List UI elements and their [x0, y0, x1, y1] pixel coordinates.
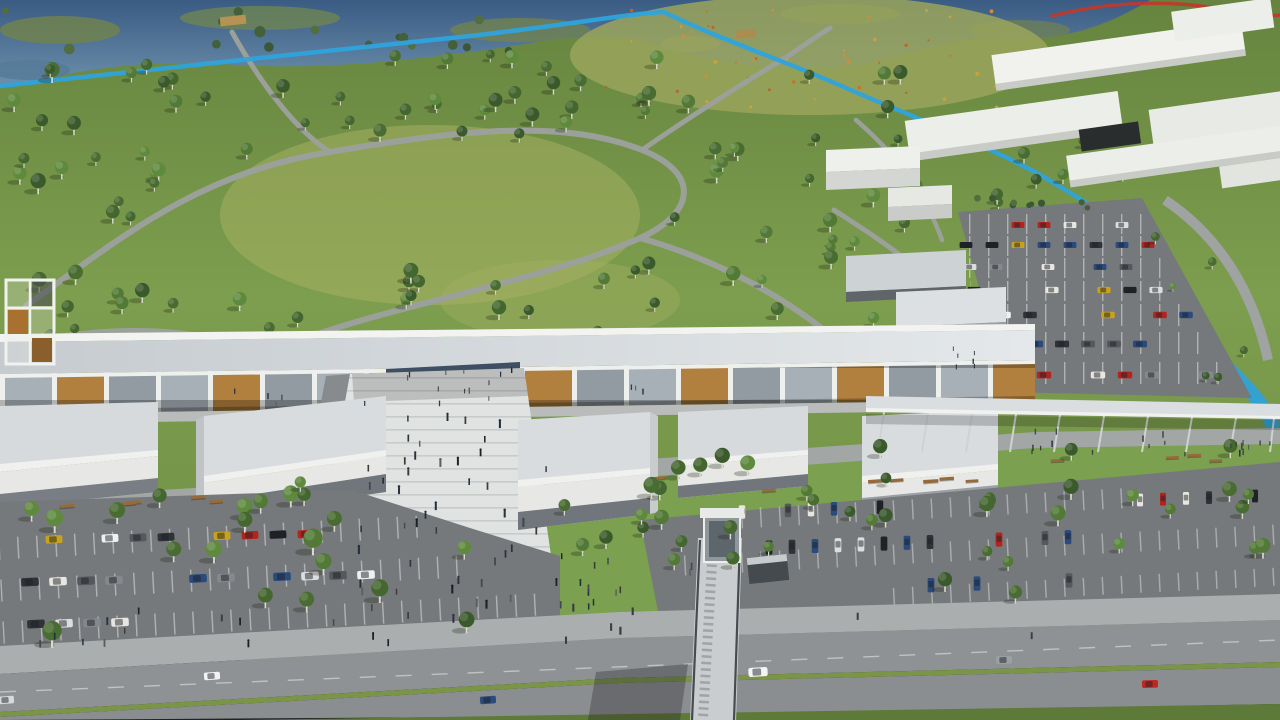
canopy-walk-person	[1242, 449, 1244, 456]
promenade-person	[39, 640, 41, 647]
meadow-flower	[605, 86, 607, 88]
wetland-bush	[212, 40, 221, 49]
bollard	[1031, 450, 1032, 455]
parked-car	[27, 619, 45, 628]
parked-car	[1118, 372, 1132, 379]
bollard	[1184, 452, 1185, 456]
plaza-person	[415, 518, 418, 527]
terrace-person	[974, 351, 975, 355]
meadow-flower	[707, 25, 709, 27]
plaza-person	[371, 604, 373, 611]
terrace-person	[974, 364, 975, 369]
park-building-front	[888, 204, 952, 221]
parked-car	[1066, 573, 1073, 587]
meadow-flower	[705, 74, 708, 77]
plaza-person	[409, 560, 411, 567]
bollard	[1040, 446, 1041, 451]
bridge-person	[587, 584, 589, 592]
plaza-person	[396, 589, 398, 595]
bridge-person	[593, 599, 595, 605]
canopy-walk-person	[1035, 429, 1037, 435]
colonnade-person	[488, 380, 489, 385]
plaza-person	[499, 419, 502, 428]
plaza-person	[382, 478, 384, 484]
light-pole	[572, 604, 574, 612]
bridge-person	[579, 579, 581, 586]
meadow-flower	[868, 15, 871, 18]
bridge-person	[615, 589, 617, 595]
bridge-person	[691, 563, 693, 570]
colonnade-person	[281, 395, 283, 401]
bridge-person	[588, 603, 590, 609]
parked-car	[835, 538, 842, 552]
promenade-person	[333, 619, 335, 626]
parked-car	[812, 539, 819, 553]
parked-car	[927, 535, 934, 549]
meadow-flower	[847, 60, 851, 64]
plaza-person	[457, 457, 459, 466]
promenade-person	[138, 607, 140, 614]
light-pole	[857, 613, 859, 620]
marsh-patch	[0, 16, 120, 44]
park-building-roof	[888, 185, 952, 207]
wetland-bush	[254, 26, 265, 37]
service-block-roof	[896, 287, 1006, 327]
plaza-person	[451, 585, 454, 594]
meadow-flower	[857, 86, 861, 90]
meadow-flower	[844, 64, 846, 66]
meadow-flower	[843, 49, 845, 51]
promenade-person	[54, 633, 56, 640]
parked-car	[1055, 341, 1069, 348]
parked-car	[1064, 222, 1077, 228]
parked-car	[1116, 222, 1129, 228]
parked-car	[960, 242, 973, 248]
wetland-bush	[310, 25, 319, 34]
meadow-flower	[771, 9, 774, 12]
hedge-bush	[989, 195, 996, 202]
parked-car	[21, 577, 39, 586]
wetland-bush	[2, 7, 9, 14]
parked-car	[1107, 341, 1121, 348]
plaza-person	[476, 598, 478, 607]
wetland-bush	[64, 44, 75, 55]
meadow-flower	[927, 39, 929, 41]
parked-car	[1123, 287, 1136, 293]
bench	[1209, 459, 1222, 463]
parked-car	[881, 537, 888, 551]
parked-car	[101, 534, 118, 543]
meadow-flower	[681, 34, 684, 37]
plaza-person	[468, 478, 470, 485]
plaza-person	[361, 588, 363, 596]
entrance-person	[409, 372, 411, 378]
light-pole	[565, 637, 567, 644]
bridge-person	[555, 578, 557, 586]
terrace-person	[957, 354, 958, 358]
road-car	[996, 656, 1012, 664]
hedge-bush	[1026, 202, 1032, 208]
plaza-person	[358, 545, 361, 554]
bridge-person	[607, 558, 609, 565]
parked-car	[1091, 372, 1105, 379]
plaza-person	[435, 527, 437, 534]
meadow-flower	[905, 92, 907, 94]
promenade-person	[372, 632, 374, 640]
parked-car	[1097, 287, 1110, 293]
tower-wood-panel	[8, 310, 28, 334]
entrance-person	[445, 370, 446, 375]
canopy-walk-person	[1239, 450, 1241, 457]
parked-car	[1064, 242, 1077, 248]
colonnade-person	[488, 396, 489, 401]
meadow-flower	[711, 26, 714, 29]
promenade-person	[387, 639, 389, 646]
plaza-person	[452, 614, 454, 623]
promenade-person	[106, 617, 108, 625]
parked-car	[1081, 341, 1095, 348]
colonnade-person	[364, 401, 365, 406]
wetland-bush	[234, 7, 243, 16]
plaza-person	[464, 416, 466, 424]
plaza-person	[439, 458, 442, 467]
meadow-flower	[943, 98, 946, 101]
plaza-person	[369, 482, 371, 490]
meadow-flower	[768, 88, 771, 91]
parked-car	[1133, 341, 1147, 348]
meadow-flower	[873, 38, 877, 42]
tower-wood-panel	[32, 338, 52, 362]
parked-car	[357, 570, 375, 579]
parked-car	[1090, 242, 1103, 248]
meadow-flower	[878, 62, 880, 64]
bollard	[1269, 441, 1270, 445]
plaza-person	[484, 436, 486, 443]
plaza-person	[504, 550, 506, 558]
plaza-person	[407, 415, 409, 421]
bollard	[1236, 442, 1237, 446]
parked-car	[996, 533, 1003, 547]
parked-car	[1094, 264, 1107, 270]
parked-car	[789, 540, 796, 554]
meadow-flower	[691, 31, 693, 33]
meadow-flower	[680, 25, 683, 28]
plaza-person	[545, 466, 547, 472]
plaza-person	[509, 594, 511, 602]
plaza-person	[407, 434, 409, 441]
service-block-roof	[846, 250, 966, 292]
light-pole	[1031, 632, 1033, 639]
road-car	[1142, 680, 1158, 688]
aerial-rendering-stage	[0, 0, 1280, 720]
promenade-person	[124, 628, 126, 634]
entrance-person	[463, 369, 464, 374]
bridge-person	[594, 562, 596, 569]
parked-car	[1038, 242, 1051, 248]
meadow-flower	[792, 80, 796, 84]
entrance-person	[500, 372, 501, 377]
bollard	[1148, 444, 1149, 448]
colonnade-person	[468, 388, 470, 394]
plaza-person	[481, 579, 483, 587]
meadow-flower	[714, 60, 718, 64]
meadow-flower	[705, 100, 708, 103]
parked-car	[1065, 530, 1072, 544]
meadow-flower	[949, 15, 952, 18]
parked-car	[269, 530, 286, 539]
hedge-bush	[1011, 200, 1017, 206]
wetland-bush	[463, 43, 471, 51]
entrance-person	[464, 389, 465, 394]
parked-car	[213, 531, 230, 540]
meadow-flower	[904, 44, 907, 47]
plaza-person	[407, 612, 409, 619]
canopy-walk-person	[1242, 440, 1244, 446]
plaza-person	[494, 557, 496, 565]
parked-car	[1012, 242, 1025, 248]
meadow-flower	[975, 72, 979, 76]
meadow-flower	[749, 105, 752, 108]
parked-car	[1045, 287, 1058, 293]
parked-car	[105, 576, 123, 585]
parked-car	[49, 577, 67, 586]
road-car	[204, 672, 220, 681]
plaza-person	[479, 448, 481, 456]
parked-car	[217, 573, 235, 582]
plaza-person	[407, 467, 409, 475]
parked-car	[990, 264, 1003, 270]
road-car	[0, 696, 14, 705]
plaza-person	[404, 457, 406, 464]
observation-tower	[6, 280, 54, 364]
park-building-roof	[826, 146, 920, 172]
pavilion-a	[0, 402, 158, 508]
light-pole	[221, 614, 223, 621]
entrance-person	[407, 375, 409, 380]
parked-car	[831, 502, 837, 516]
bridge-shadow	[588, 664, 688, 720]
parked-car	[1042, 264, 1055, 270]
parked-car	[1160, 493, 1166, 506]
parked-car	[111, 618, 129, 627]
terrace-person	[953, 346, 954, 351]
parked-car	[1037, 372, 1051, 379]
bollard	[1259, 441, 1260, 446]
promenade-person	[239, 618, 241, 626]
parked-car	[1206, 491, 1212, 504]
terrace-person	[956, 364, 957, 369]
plaza-person	[424, 511, 426, 519]
colonnade-person	[439, 401, 441, 407]
parked-car	[1149, 287, 1162, 293]
light-pole	[619, 627, 621, 635]
tower-dark-cell	[32, 282, 52, 306]
parked-car	[974, 576, 981, 590]
hedge-bush	[1085, 205, 1091, 211]
meadow-flower	[994, 85, 996, 87]
parked-car	[1101, 312, 1115, 318]
plaza-person	[535, 527, 537, 535]
meadow-flower	[630, 40, 632, 42]
parked-car	[858, 537, 865, 551]
wetland-boardwalk	[736, 29, 757, 38]
parked-car	[785, 504, 791, 518]
meadow-flower	[814, 98, 816, 100]
parked-car	[77, 576, 95, 585]
plaza-person	[367, 465, 369, 472]
plaza-person	[511, 544, 513, 552]
aerial-rendering	[0, 0, 1280, 720]
colonnade-person	[642, 389, 644, 395]
parked-car	[1145, 372, 1159, 379]
plaza-person	[414, 451, 416, 459]
plaza-person	[419, 441, 421, 447]
parked-car	[83, 618, 101, 627]
parked-car	[329, 571, 347, 580]
entrance-person	[438, 386, 439, 391]
colonnade-person	[635, 386, 636, 391]
promenade-person	[247, 639, 249, 647]
bridge-person	[560, 601, 562, 609]
parked-car	[189, 574, 207, 583]
terrace-person	[972, 359, 973, 364]
meadow-flower	[925, 9, 928, 12]
meadow-flower	[990, 9, 994, 13]
parked-car	[129, 533, 146, 542]
plaza-person	[503, 508, 506, 517]
parked-car	[1023, 312, 1037, 318]
canopy-walk-person	[1056, 428, 1058, 434]
plaza-person	[446, 413, 448, 421]
bridge-person	[689, 569, 691, 576]
parked-car	[273, 572, 291, 581]
wetland-bush	[474, 15, 483, 24]
plaza-person	[435, 501, 437, 510]
elevator-cap	[700, 508, 744, 518]
parked-car	[1120, 264, 1133, 270]
meadow-flower	[630, 9, 633, 12]
promenade-person	[103, 639, 105, 647]
bollard	[1092, 450, 1093, 455]
parked-car	[1116, 242, 1129, 248]
plaza-person	[457, 576, 459, 584]
parked-car	[1012, 222, 1025, 228]
pavilion-d	[678, 406, 808, 498]
parked-car	[157, 533, 174, 542]
plaza-person	[404, 523, 406, 529]
bench	[1166, 456, 1179, 460]
bench	[1187, 454, 1201, 458]
meadow-flower	[752, 58, 755, 61]
hedge-bush	[974, 195, 981, 202]
light-pole	[632, 607, 634, 615]
plaza-person	[360, 526, 362, 532]
meadow-flower	[735, 62, 737, 64]
meadow-flower	[843, 54, 846, 57]
plaza-person	[486, 482, 488, 490]
light-pole	[610, 623, 612, 631]
road-car	[748, 667, 768, 677]
meadow-flower	[676, 90, 679, 93]
hedge-bush	[1079, 199, 1085, 205]
plaza-person	[359, 579, 361, 588]
plaza-person	[485, 600, 488, 609]
parked-car	[1038, 222, 1051, 228]
parked-car	[1179, 312, 1193, 318]
meadow-flower	[949, 54, 951, 56]
bollard	[1230, 443, 1231, 447]
colonnade-person	[234, 389, 236, 394]
entrance-person	[511, 367, 513, 373]
parked-car	[1183, 492, 1189, 505]
bridge-person	[619, 586, 621, 593]
road-car	[480, 696, 496, 705]
canopy-walk-person	[1142, 435, 1144, 441]
parked-car	[904, 536, 911, 550]
meadow-flower	[706, 10, 708, 12]
canopy-walk-person	[1162, 431, 1164, 438]
parked-car	[45, 535, 62, 544]
colonnade-person	[275, 402, 277, 408]
wetland-bush	[448, 40, 458, 50]
bridge-person	[561, 553, 563, 559]
promenade-person	[82, 639, 84, 645]
wetland-bush	[264, 42, 274, 52]
plaza-person	[522, 518, 525, 527]
parked-car	[1042, 531, 1049, 545]
canopy-walk-person	[1051, 441, 1053, 448]
hedge-bush	[1038, 200, 1045, 207]
bollard	[1164, 441, 1165, 445]
colonnade-person	[631, 384, 633, 390]
colonnade-person	[267, 393, 269, 399]
plaza-person	[398, 485, 401, 494]
parked-car	[1153, 312, 1167, 318]
canopy-walk-person	[1248, 445, 1249, 450]
parked-car	[986, 242, 999, 248]
